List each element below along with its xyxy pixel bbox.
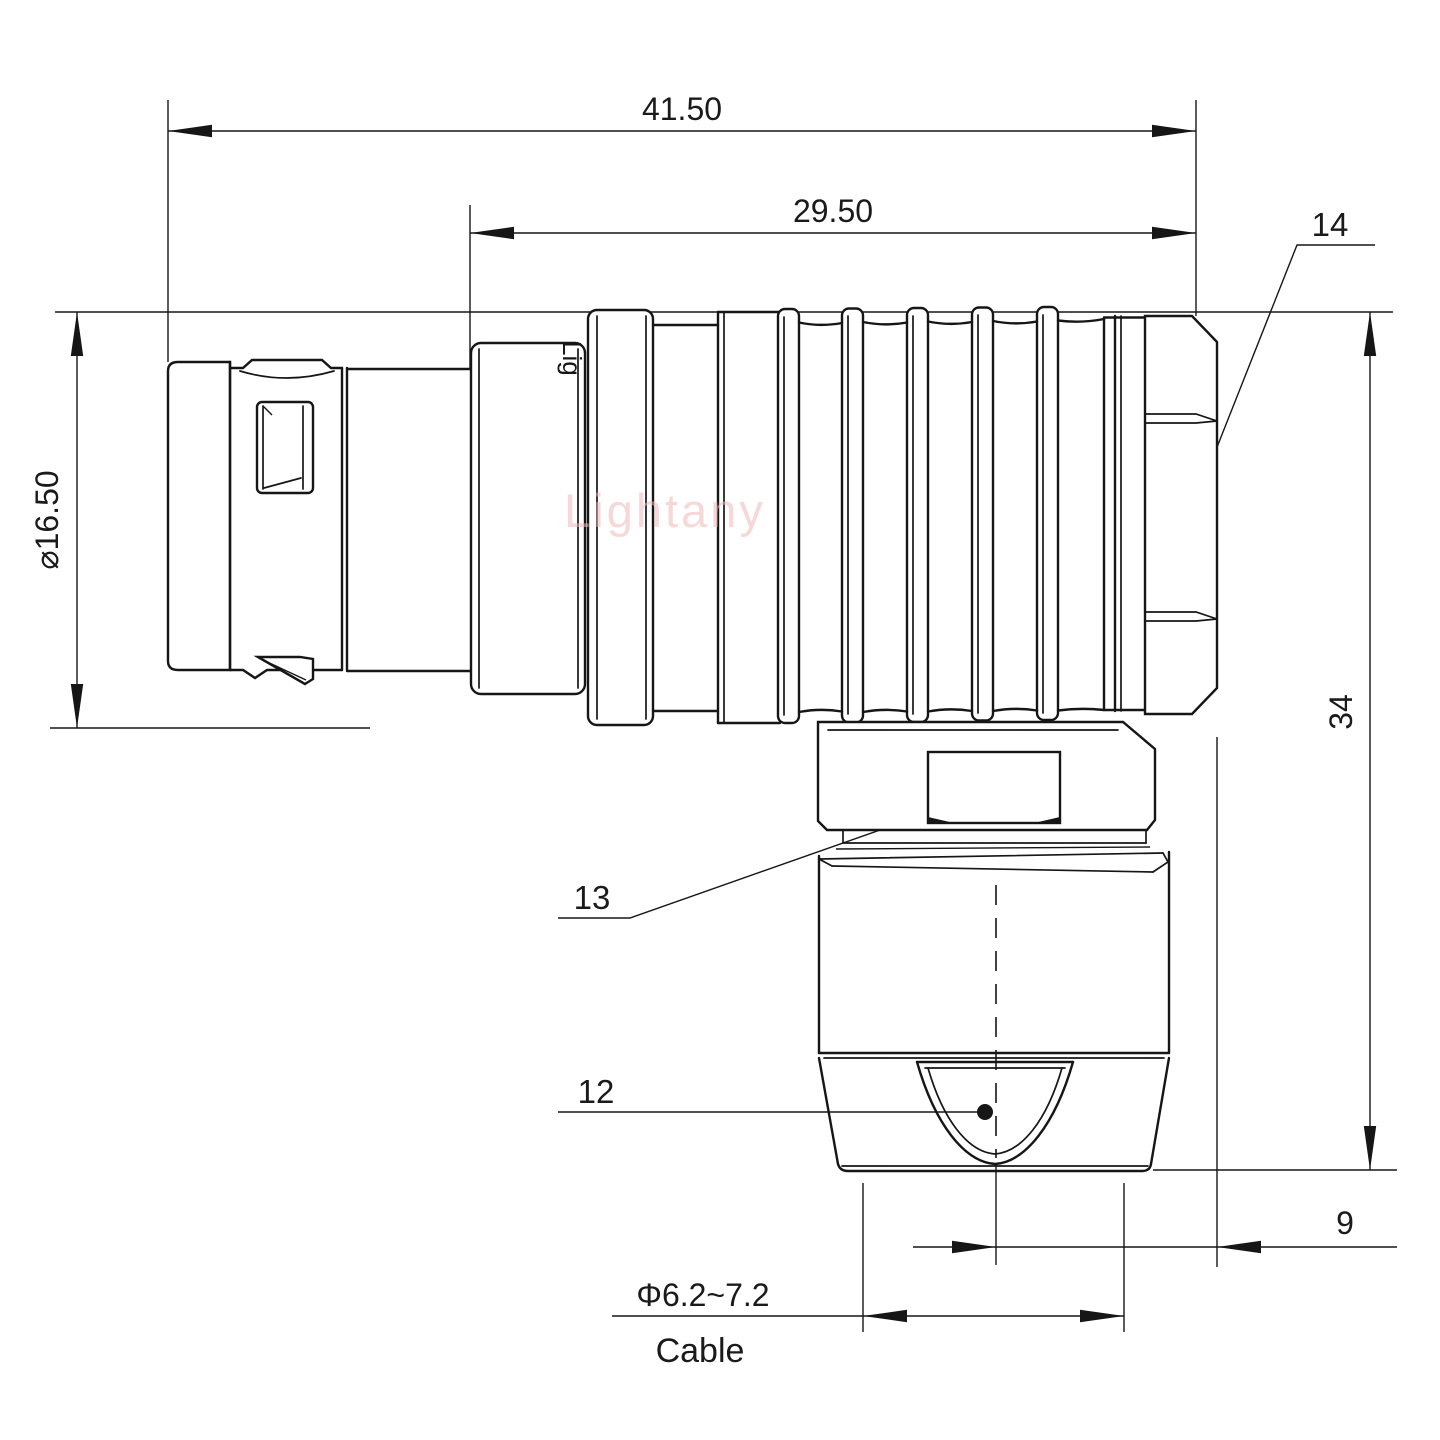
arrowhead — [71, 684, 83, 728]
rear-sleeve — [168, 360, 347, 684]
callout-leaders — [558, 245, 1375, 1120]
dim-overall-length: 41.50 — [642, 91, 722, 127]
arrowhead — [1080, 1310, 1124, 1322]
watermark-text: Lightany — [564, 484, 766, 537]
arrowhead — [952, 1241, 996, 1253]
elbow-backnut — [818, 722, 1155, 843]
dimension-texts: 41.50 29.50 ⌀16.50 34 9 Φ6.2~7.2 Cable — [29, 91, 1359, 1370]
dim-offset: 9 — [1336, 1205, 1354, 1241]
grip-rib — [778, 309, 799, 723]
technical-drawing-page: Lig — [0, 0, 1440, 1440]
arrowhead — [863, 1310, 907, 1322]
label-cable: Cable — [656, 1332, 745, 1370]
dim-body-length: 29.50 — [793, 193, 873, 229]
arrowhead — [1152, 227, 1196, 239]
thread-runout — [819, 847, 1168, 872]
extension-lines — [168, 100, 1217, 1332]
arrowhead — [1152, 125, 1196, 137]
arrowhead — [1364, 1126, 1376, 1170]
cable-clamp — [819, 852, 1169, 1171]
grip-rib — [1037, 307, 1058, 720]
grip-rib — [907, 308, 928, 722]
inner-tube — [347, 369, 471, 671]
callout-12: 12 — [578, 1073, 615, 1110]
dim-height: 34 — [1323, 694, 1359, 730]
dim-cable-range: Φ6.2~7.2 — [636, 1277, 769, 1313]
hex-coupling — [1145, 316, 1217, 714]
callout-14: 14 — [1312, 206, 1349, 243]
connector-technical-drawing: Lig — [0, 0, 1440, 1440]
dim-diameter: ⌀16.50 — [29, 470, 65, 569]
leader-dot-12 — [977, 1104, 993, 1120]
engraved-brand-text: Lig — [557, 341, 587, 376]
callout-13: 13 — [574, 879, 611, 916]
arrowhead — [1364, 312, 1376, 356]
wrench-flat — [928, 752, 1060, 823]
arrowhead — [71, 312, 83, 356]
arrowhead — [168, 125, 212, 137]
arrowhead — [1217, 1241, 1261, 1253]
grip-rib — [972, 308, 993, 721]
grip-rib — [842, 309, 863, 723]
arrowhead — [470, 227, 514, 239]
bayonet-window — [257, 402, 313, 493]
callout-texts: 14 13 12 — [574, 206, 1349, 1110]
